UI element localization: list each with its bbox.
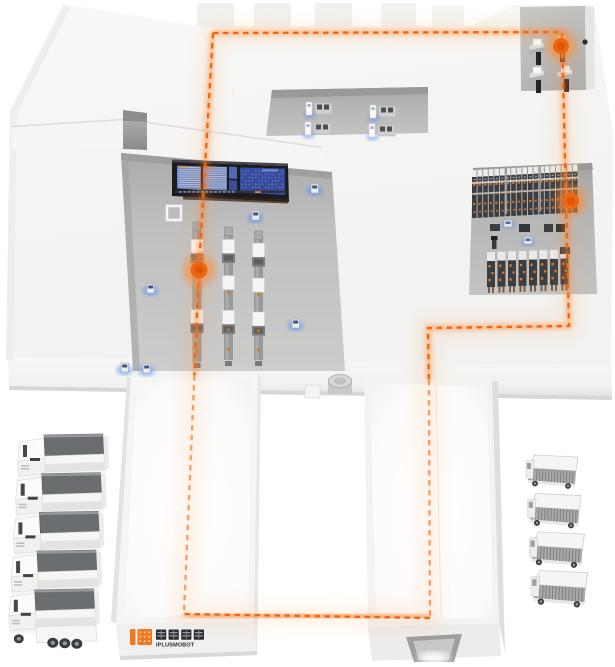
svg-text:IPLUSMOBOT: IPLUSMOBOT — [156, 643, 195, 649]
